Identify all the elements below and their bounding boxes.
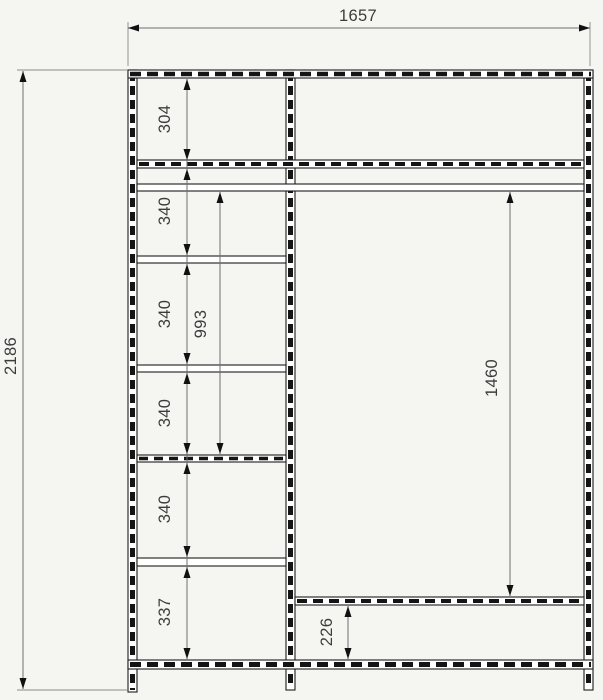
left-shelf-4	[137, 455, 286, 462]
dim-arrow	[184, 443, 191, 454]
bottom-panel	[128, 660, 593, 669]
dim-arrow	[184, 567, 191, 578]
dim-overall-width: 1657	[128, 7, 590, 66]
dim-arrow	[217, 192, 224, 203]
section-1-label: 304	[156, 105, 174, 133]
top-panel	[128, 70, 593, 78]
section-2-label: 340	[156, 197, 174, 225]
dim-arrow	[184, 353, 191, 364]
right-side-panel	[584, 70, 593, 690]
dim-arrow	[184, 79, 191, 90]
wardrobe-dimension-drawing: 1657 2186 304 340 340	[0, 0, 603, 700]
dim-arrow	[20, 71, 27, 82]
dim-right-section-height: 1460	[483, 192, 514, 596]
dim-arrow	[507, 192, 514, 203]
dim-overall-height: 2186	[2, 70, 127, 690]
left-shelf-3	[137, 365, 286, 372]
dim-arrow	[184, 648, 191, 659]
dim-arrow	[345, 606, 352, 617]
right-section-label: 1460	[483, 359, 501, 397]
right-bottom-shelf	[295, 597, 584, 605]
dimension-annotations: 1657 2186 304 340 340	[2, 7, 590, 690]
left-shelf-5	[137, 558, 286, 566]
section-5-label: 340	[156, 495, 174, 523]
dim-arrow	[345, 648, 352, 659]
second-shelf-full-width	[137, 184, 584, 191]
section-6-label: 337	[156, 598, 174, 626]
dim-arrow	[184, 264, 191, 275]
dim-arrow	[507, 585, 514, 596]
dim-arrow	[184, 373, 191, 384]
drawing-svg: 1657 2186 304 340 340	[0, 0, 603, 700]
dim-arrow	[128, 25, 139, 32]
dim-arrow	[217, 443, 224, 454]
dim-left-column-span: 993	[192, 192, 224, 454]
left-shelf-2	[137, 256, 286, 263]
upper-shelf-full-width	[137, 160, 584, 168]
dim-arrow	[184, 169, 191, 180]
dim-arrow	[184, 149, 191, 160]
dim-arrow	[184, 546, 191, 557]
overall-width-label: 1657	[339, 7, 377, 25]
wardrobe-structure	[128, 70, 593, 692]
left-side-panel	[128, 70, 137, 692]
overall-height-label: 2186	[2, 337, 20, 375]
dim-arrow	[184, 463, 191, 474]
dim-arrow	[20, 678, 27, 689]
section-3-label: 340	[156, 300, 174, 328]
dim-arrow	[184, 244, 191, 255]
dim-right-bottom-section: 226	[318, 606, 352, 659]
section-4-label: 340	[156, 399, 174, 427]
left-span-label: 993	[192, 310, 210, 338]
right-bottom-label: 226	[318, 618, 336, 646]
dim-arrow	[579, 25, 590, 32]
